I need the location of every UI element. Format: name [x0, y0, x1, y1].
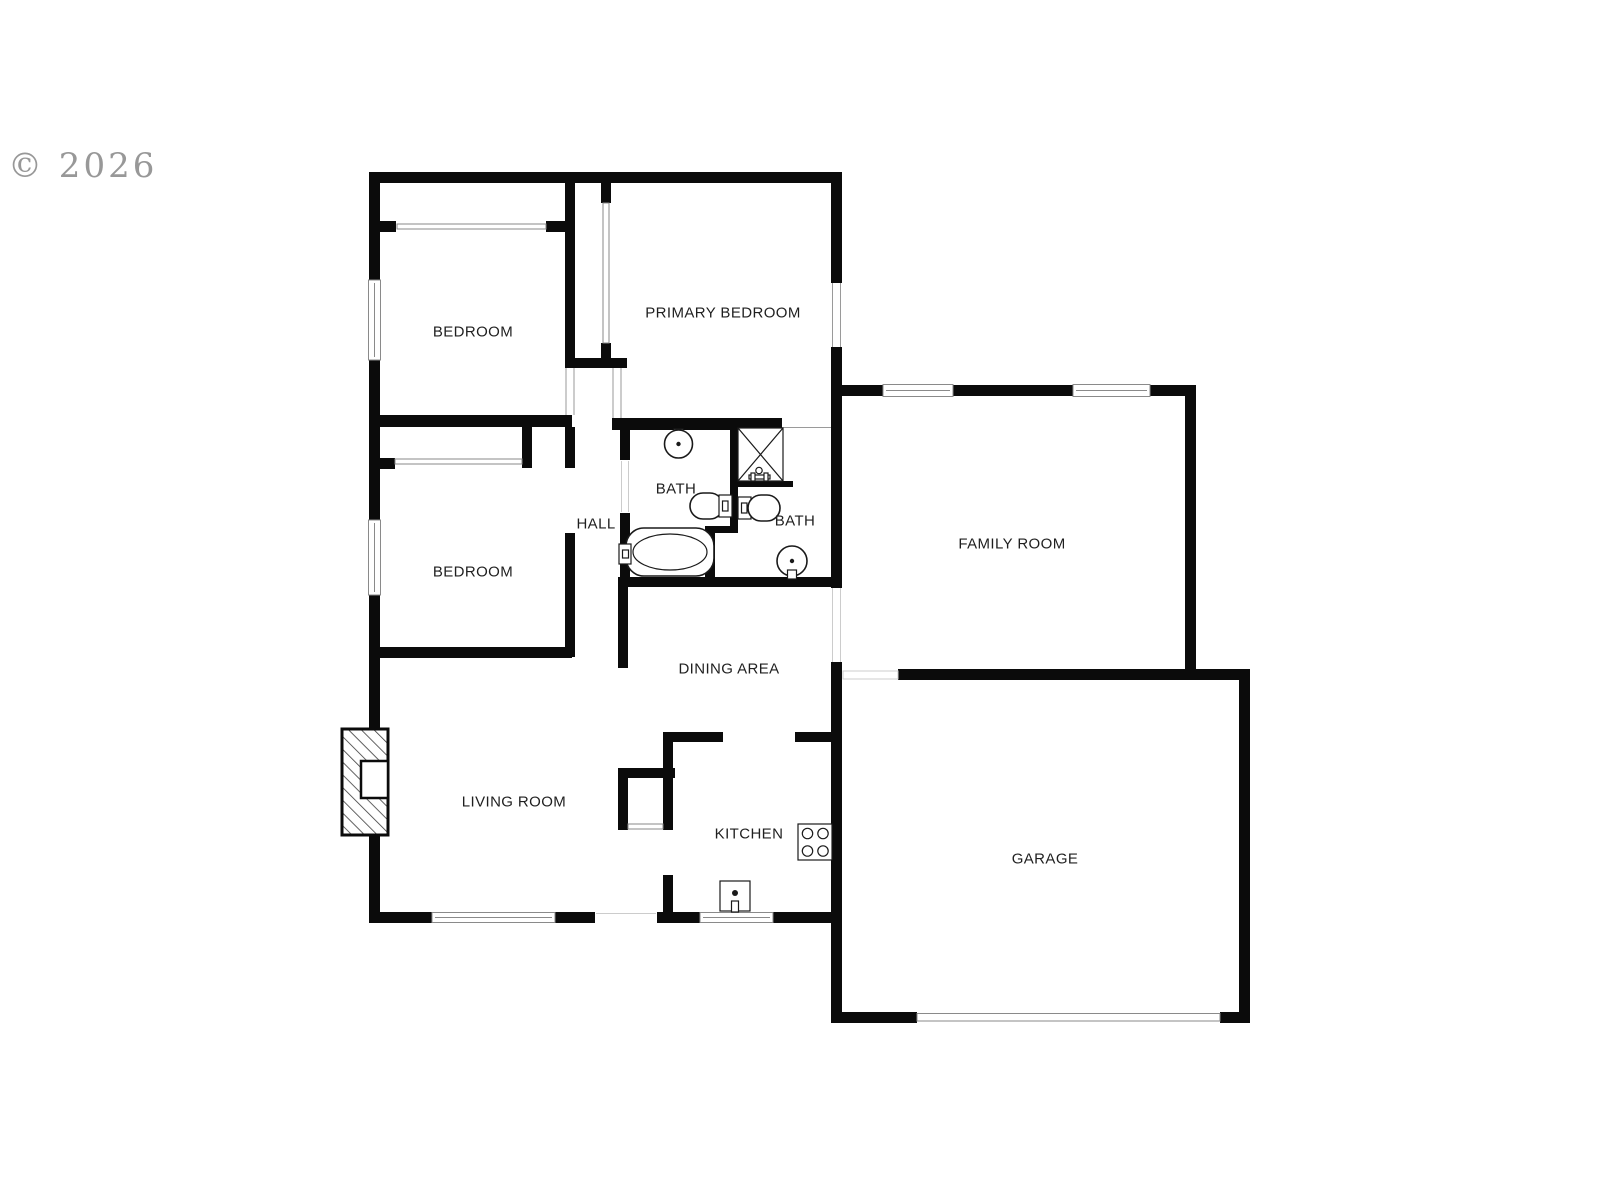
wall-segment	[369, 172, 842, 183]
door-opening	[603, 203, 609, 343]
wall-segment	[369, 595, 380, 730]
wall-segment	[831, 662, 842, 1023]
wall-segment	[618, 577, 842, 587]
wall-segment	[618, 768, 628, 830]
floor-plan: © 2026	[0, 0, 1600, 1200]
kitchen-sink-icon	[720, 881, 750, 912]
window	[883, 385, 953, 397]
window	[369, 280, 381, 360]
window	[1073, 385, 1150, 397]
bath1-fixtures	[619, 429, 732, 576]
room-label-hall: HALL	[576, 516, 615, 533]
wall-segment	[1220, 1012, 1250, 1023]
toilet-icon	[690, 493, 732, 519]
window	[833, 283, 841, 347]
fireplace-icon	[342, 729, 388, 835]
room-label-living-room: LIVING ROOM	[462, 794, 566, 811]
wall-segment	[715, 526, 738, 533]
wall-segment	[831, 347, 842, 588]
room-label-bath-2: BATH	[775, 513, 816, 530]
wall-segment	[618, 577, 628, 668]
door-opening	[566, 368, 574, 415]
window	[369, 520, 381, 595]
door-opening	[843, 671, 898, 679]
wall-segment	[369, 647, 572, 658]
wall-segment	[795, 732, 842, 742]
pedestal-sink-icon	[665, 429, 693, 458]
garage-door	[917, 1014, 1220, 1022]
wall-segment	[601, 183, 611, 203]
wall-segment	[663, 875, 673, 923]
bathtub-icon	[619, 528, 714, 576]
wall-segment	[369, 415, 572, 427]
wall-segment	[565, 358, 627, 368]
room-label-family-room: FAMILY ROOM	[958, 536, 1065, 553]
door-opening	[622, 461, 629, 512]
bath2-fixtures	[738, 428, 807, 579]
door-opening	[833, 588, 841, 662]
room-label-dining-area: DINING AREA	[678, 661, 779, 678]
wall-segment	[565, 427, 575, 468]
room-label-garage: GARAGE	[1012, 851, 1079, 868]
wall-segment	[369, 360, 380, 520]
wall-segment	[369, 912, 432, 923]
room-label-bath-1: BATH	[656, 481, 697, 498]
window	[432, 913, 555, 923]
wall-segment	[620, 418, 630, 460]
wall-segment	[1239, 669, 1250, 1023]
copyright-watermark: © 2026	[8, 146, 157, 186]
closet-door-line	[628, 824, 663, 829]
room-label-kitchen: KITCHEN	[715, 826, 784, 843]
wall-segment	[369, 835, 380, 923]
wall-segment	[831, 385, 883, 396]
closet-door-line	[395, 459, 522, 464]
wall-segment	[546, 221, 570, 232]
wall-segment	[953, 385, 1073, 396]
room-label-bedroom-2: BEDROOM	[433, 564, 513, 581]
closet-door-line	[397, 224, 546, 229]
wall-segment	[898, 669, 1250, 680]
wall-segment	[565, 183, 575, 368]
wall-segment	[378, 458, 395, 469]
door-opening	[613, 368, 621, 418]
floor-plan-drawing: BEDROOM PRIMARY BEDROOM BEDROOM HALL BAT…	[0, 0, 1600, 1200]
pedestal-sink-icon	[777, 546, 807, 579]
window	[700, 913, 773, 923]
wall-segment	[738, 481, 793, 487]
wall-segment	[565, 533, 575, 657]
shower-icon	[738, 428, 783, 481]
wall-segment	[522, 427, 532, 468]
toilet-icon	[738, 495, 780, 521]
wall-segment	[831, 172, 842, 283]
wall-segment	[831, 1012, 917, 1023]
room-label-bedroom-1: BEDROOM	[433, 324, 513, 341]
wall-segment	[369, 221, 396, 232]
wall-segment	[663, 732, 673, 830]
wall-segment	[1185, 385, 1196, 680]
room-label-primary-bedroom: PRIMARY BEDROOM	[645, 305, 800, 322]
wall-segment	[555, 912, 595, 923]
exterior-walls	[369, 172, 1250, 1023]
stove-icon	[798, 824, 832, 860]
